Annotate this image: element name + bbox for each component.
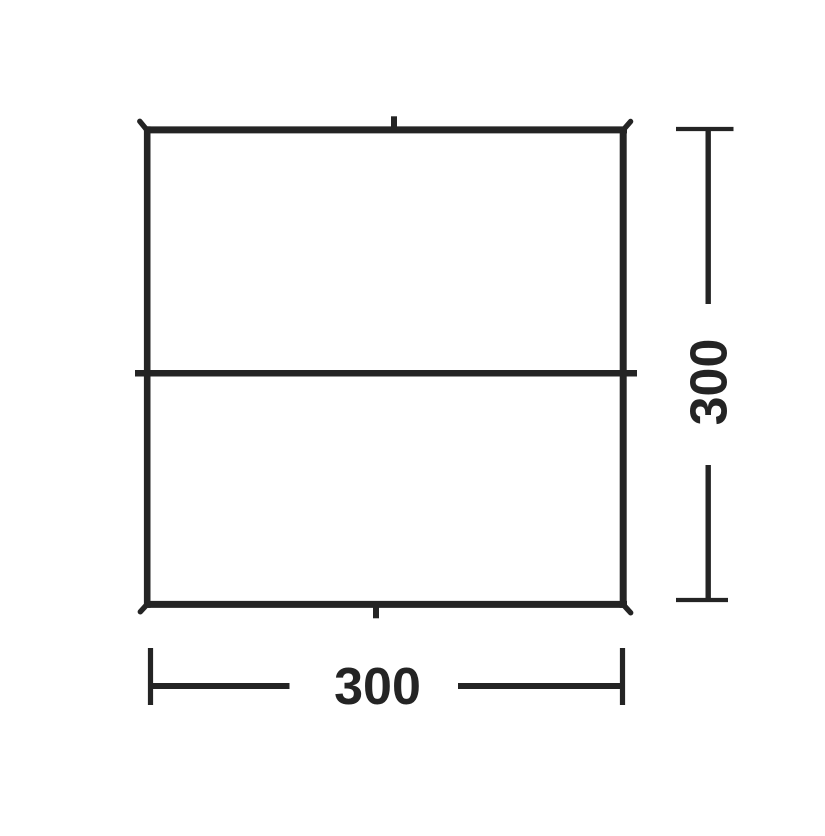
svg-text:300: 300 (334, 658, 421, 716)
svg-text:300: 300 (681, 339, 739, 426)
